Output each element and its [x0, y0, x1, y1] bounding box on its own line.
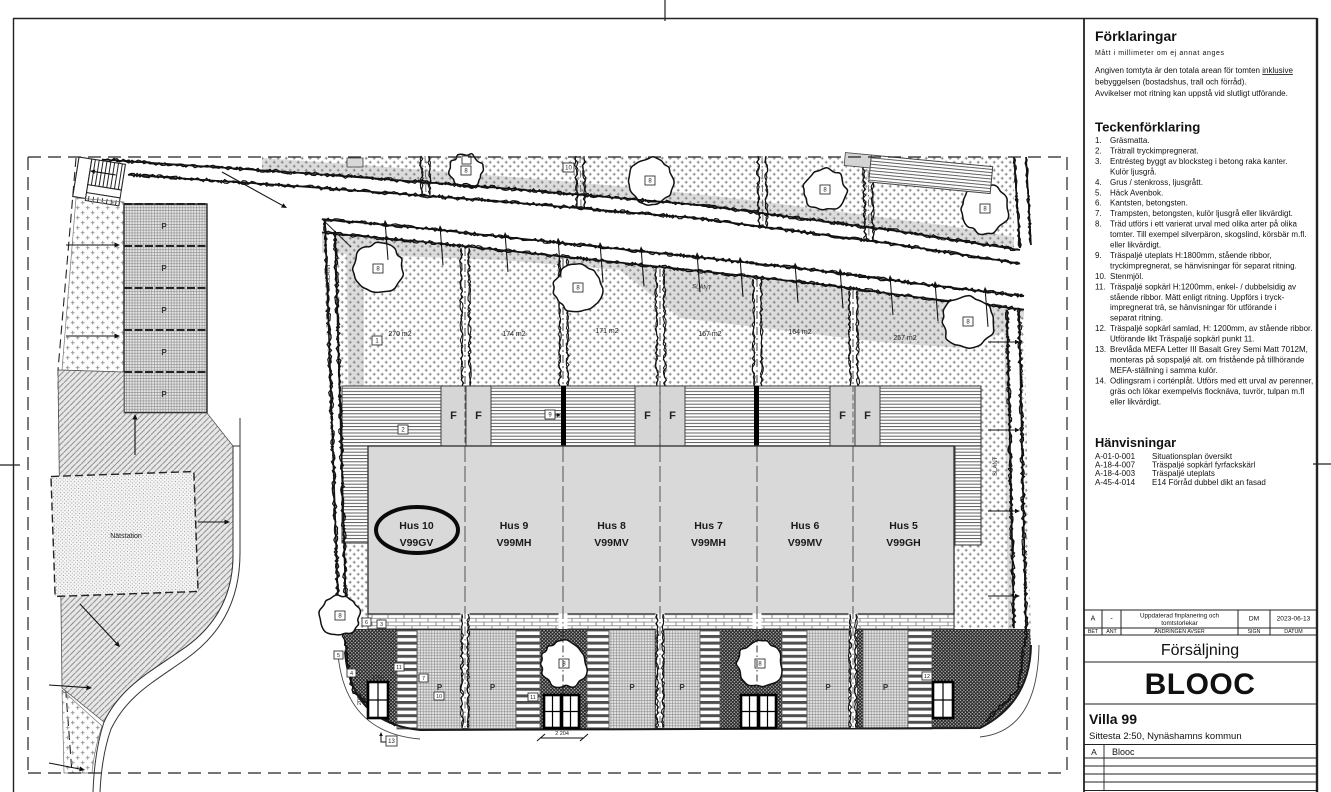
svg-text:11.: 11.	[1095, 282, 1106, 291]
svg-text:12.: 12.	[1095, 324, 1106, 333]
svg-text:P: P	[161, 222, 167, 231]
svg-text:Villa 99: Villa 99	[1089, 711, 1137, 727]
svg-text:P: P	[161, 264, 167, 273]
svg-text:P: P	[629, 683, 635, 692]
svg-text:164 m2: 164 m2	[788, 329, 811, 336]
svg-text:270 m2: 270 m2	[388, 331, 411, 338]
svg-text:5: 5	[337, 653, 340, 659]
svg-text:2 204: 2 204	[555, 731, 569, 737]
svg-text:eller likvärdigt.: eller likvärdigt.	[1110, 397, 1161, 406]
svg-text:Hänvisningar: Hänvisningar	[1095, 435, 1176, 450]
svg-text:F: F	[669, 410, 676, 422]
svg-text:13: 13	[388, 739, 395, 745]
svg-text:Teckenförklaring: Teckenförklaring	[1095, 120, 1200, 135]
svg-text:A: A	[1091, 747, 1097, 757]
svg-text:Trampsten, betongsten, kulör l: Trampsten, betongsten, kulör ljusgrå ell…	[1110, 209, 1293, 218]
svg-text:Mått i millimeter om ej annat: Mått i millimeter om ej annat anges	[1095, 49, 1225, 57]
svg-text:Utförande likt Träspaljé sopkä: Utförande likt Träspaljé sopkärl punkt 1…	[1110, 335, 1254, 344]
svg-text:Kantsten, betongsten.: Kantsten, betongsten.	[1110, 199, 1188, 208]
svg-text:11: 11	[530, 695, 536, 701]
svg-text:BLOOC: BLOOC	[1145, 668, 1256, 701]
svg-text:Stenmjöl.: Stenmjöl.	[1110, 272, 1143, 281]
svg-text:11: 11	[396, 665, 402, 671]
svg-text:Träd utförs i ett varierat urv: Träd utförs i ett varierat urval med oli…	[1110, 220, 1297, 229]
svg-text:P: P	[883, 683, 889, 692]
svg-text:P: P	[161, 306, 167, 315]
svg-text:E14 Förråd dubbel dikt an fasa: E14 Förråd dubbel dikt an fasad	[1152, 478, 1266, 487]
svg-text:F: F	[864, 410, 871, 422]
svg-text:Hus 5: Hus 5	[889, 520, 918, 532]
svg-text:Blooc: Blooc	[1112, 747, 1135, 757]
svg-text:P: P	[679, 683, 685, 692]
svg-text:P: P	[437, 683, 443, 692]
svg-text:2023-06-13: 2023-06-13	[1277, 616, 1311, 623]
svg-text:Träspaljé uteplats H:1800mm, s: Träspaljé uteplats H:1800mm, stående rib…	[1110, 251, 1272, 260]
svg-text:V99MH: V99MH	[691, 537, 726, 549]
svg-text:6.: 6.	[1095, 199, 1102, 208]
svg-text:Uppdaterad finplanering och: Uppdaterad finplanering och	[1140, 613, 1220, 620]
svg-text:eller likvärdigt.: eller likvärdigt.	[1110, 241, 1161, 250]
svg-text:A-45-4-014: A-45-4-014	[1095, 478, 1136, 487]
svg-text:Hus 6: Hus 6	[791, 520, 820, 532]
svg-text:9.: 9.	[1095, 251, 1102, 260]
svg-text:7.: 7.	[1095, 209, 1102, 218]
svg-text:F: F	[450, 410, 457, 422]
svg-text:Grus / stenkross, ljusgrått.: Grus / stenkross, ljusgrått.	[1110, 178, 1203, 187]
svg-text:Hus 7: Hus 7	[694, 520, 723, 532]
svg-text:2 160: 2 160	[584, 703, 590, 717]
svg-text:Entrésteg byggt av blocksteg i: Entrésteg byggt av blocksteg i betong ra…	[1110, 157, 1287, 166]
svg-text:tomtstorlekar: tomtstorlekar	[1161, 620, 1197, 627]
svg-text:6: 6	[365, 620, 368, 626]
svg-text:Gräsmatta.: Gräsmatta.	[1110, 136, 1150, 145]
svg-text:F: F	[839, 410, 846, 422]
svg-text:1200: 1200	[372, 675, 384, 681]
svg-text:14.: 14.	[1095, 376, 1106, 385]
svg-text:stående ribbor. Mätt enligt ri: stående ribbor. Mätt enligt ritning. Upp…	[1110, 293, 1285, 302]
svg-text:7: 7	[422, 676, 425, 682]
svg-text:MEFA-ställning i samma kulör.: MEFA-ställning i samma kulör.	[1110, 366, 1218, 375]
svg-text:P: P	[161, 348, 167, 357]
svg-text:DM: DM	[1249, 616, 1259, 623]
svg-text:P: P	[825, 683, 831, 692]
svg-text:tryckimpregnerat, se hänvisnin: tryckimpregnerat, se hänvisningar för se…	[1110, 261, 1297, 270]
svg-text:A: A	[1091, 616, 1096, 623]
svg-text:Kulör ljusgrå.: Kulör ljusgrå.	[1110, 167, 1157, 176]
svg-text:F: F	[475, 410, 482, 422]
svg-text:10: 10	[565, 166, 572, 172]
svg-text:174 m2: 174 m2	[502, 331, 525, 338]
svg-text:2060: 2060	[357, 693, 363, 705]
svg-text:Avvikelser mot ritning kan upp: Avvikelser mot ritning kan uppstå vid sl…	[1095, 89, 1288, 98]
svg-text:V99MV: V99MV	[788, 537, 822, 549]
svg-text:13.: 13.	[1095, 345, 1106, 354]
svg-text:Försäljning: Försäljning	[1161, 642, 1239, 659]
svg-text:257 m2: 257 m2	[893, 335, 916, 342]
svg-text:12: 12	[924, 674, 930, 680]
svg-text:Trätrall tryckimpregnerat.: Trätrall tryckimpregnerat.	[1110, 146, 1199, 155]
svg-text:2.: 2.	[1095, 146, 1102, 155]
svg-text:Nätstation: Nätstation	[110, 533, 142, 540]
svg-text:ÄNDRINGEN AVSER: ÄNDRINGEN AVSER	[1154, 628, 1205, 635]
svg-text:P: P	[161, 390, 167, 399]
svg-text:10: 10	[436, 694, 442, 700]
svg-text:171 m2: 171 m2	[595, 328, 618, 335]
svg-text:BET: BET	[1088, 629, 1099, 635]
svg-text:F: F	[644, 410, 651, 422]
svg-text:V99MH: V99MH	[496, 537, 531, 549]
svg-text:4.: 4.	[1095, 178, 1102, 187]
svg-text:V99GH: V99GH	[886, 537, 920, 549]
svg-text:5.: 5.	[1095, 188, 1102, 197]
svg-text:bebyggelsen (bostadshus, trall: bebyggelsen (bostadshus, trall och förrå…	[1095, 78, 1247, 87]
svg-text:V99GV: V99GV	[400, 537, 434, 549]
svg-text:P: P	[490, 683, 496, 692]
svg-text:Odlingsram i corténplåt. Utför: Odlingsram i corténplåt. Utförs med ett …	[1110, 376, 1313, 385]
svg-text:Hus 10: Hus 10	[399, 520, 434, 532]
svg-text:gräs och lökar exempelvis floc: gräs och lökar exempelvis flocknäva, tuv…	[1110, 387, 1305, 396]
svg-text:Sittesta 2:50, Nynäshamns komm: Sittesta 2:50, Nynäshamns kommun	[1089, 731, 1242, 742]
svg-text:3: 3	[380, 622, 383, 628]
svg-text:separat ritning.: separat ritning.	[1110, 314, 1163, 323]
svg-text:1.: 1.	[1095, 136, 1102, 145]
svg-text:V99MV: V99MV	[594, 537, 628, 549]
svg-text:Hus 8: Hus 8	[597, 520, 626, 532]
svg-text:10.: 10.	[1095, 272, 1106, 281]
svg-text:SLÄNT: SLÄNT	[992, 456, 999, 476]
svg-text:DATUM: DATUM	[1284, 629, 1302, 635]
svg-text:167 m2: 167 m2	[698, 331, 721, 338]
svg-text:4: 4	[350, 671, 353, 677]
svg-text:monteras på sopspaljé alt. om: monteras på sopspaljé alt. om fristående…	[1110, 355, 1305, 364]
svg-text:Angiven tomtyta är den totala: Angiven tomtyta är den totala arean för …	[1095, 66, 1293, 75]
svg-text:Träspaljé sopkärl samlad, H: 1: Träspaljé sopkärl samlad, H: 1200mm, av …	[1110, 324, 1312, 333]
svg-text:3.: 3.	[1095, 157, 1102, 166]
svg-text:Träspaljé sopkärl H:1200mm, en: Träspaljé sopkärl H:1200mm, enkel- / dub…	[1110, 282, 1296, 291]
svg-text:Hus 9: Hus 9	[500, 520, 529, 532]
svg-text:8.: 8.	[1095, 220, 1102, 229]
svg-text:Häck Avenbok.: Häck Avenbok.	[1110, 188, 1163, 197]
svg-text:SIGN: SIGN	[1248, 629, 1261, 635]
svg-text:Brevlåda MEFA Letter III Basal: Brevlåda MEFA Letter III Basalt Grey Sem…	[1110, 345, 1308, 354]
svg-text:impregnerat trä, se hänvisning: impregnerat trä, se hänvisningar för utf…	[1110, 303, 1277, 312]
svg-text:tomter. Till exempel silverpär: tomter. Till exempel silverpäron, skogsl…	[1110, 230, 1307, 239]
svg-text:Förklaringar: Förklaringar	[1095, 28, 1177, 44]
svg-text:ANT: ANT	[1106, 629, 1117, 635]
